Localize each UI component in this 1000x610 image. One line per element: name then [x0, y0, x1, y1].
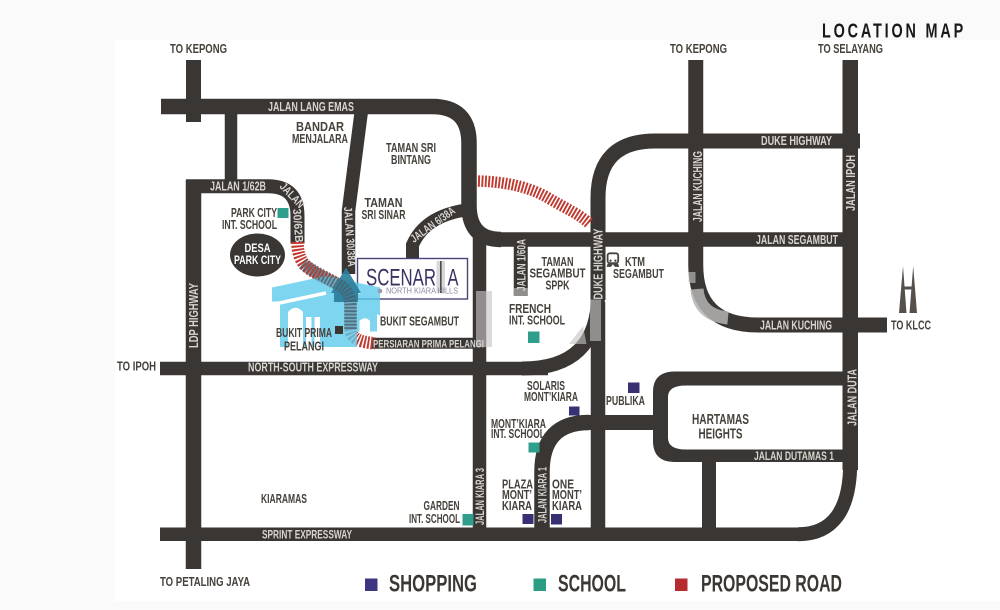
svg-text:JALAN KIARA 1: JALAN KIARA 1 [538, 467, 550, 523]
svg-text:JALAN 1/62B: JALAN 1/62B [210, 180, 266, 194]
svg-text:JALAN IPOH: JALAN IPOH [844, 155, 858, 211]
svg-text:KIARA: KIARA [502, 498, 532, 513]
svg-text:JALAN KUCHING: JALAN KUCHING [691, 151, 705, 222]
svg-text:KIARAMAS: KIARAMAS [261, 491, 307, 506]
svg-text:PARK CITY: PARK CITY [234, 255, 281, 267]
svg-text:JALAN KUCHING: JALAN KUCHING [760, 319, 832, 333]
svg-text:KIARA: KIARA [552, 498, 582, 513]
svg-text:LDP HIGHWAY: LDP HIGHWAY [187, 283, 201, 348]
svg-text:PUBLIKA: PUBLIKA [606, 393, 645, 408]
svg-text:NORTH-SOUTH EXPRESSWAY: NORTH-SOUTH EXPRESSWAY [248, 361, 378, 375]
svg-text:JALAN LANG EMAS: JALAN LANG EMAS [268, 100, 354, 114]
svg-text:DESA: DESA [245, 243, 271, 255]
svg-text:TO SELAYANG: TO SELAYANG [818, 41, 883, 56]
svg-text:TO PETALING JAYA: TO PETALING JAYA [160, 574, 250, 589]
svg-text:SEGAMBUT: SEGAMBUT [613, 266, 664, 281]
svg-text:TO KEPONG: TO KEPONG [670, 41, 727, 56]
svg-text:TO IPOH: TO IPOH [117, 359, 156, 374]
svg-text:NORTH KIARA HILLS: NORTH KIARA HILLS [386, 287, 458, 296]
svg-text:SRI SINAR: SRI SINAR [362, 207, 406, 222]
svg-text:SHOPPING: SHOPPING [389, 571, 477, 598]
svg-text:SCHOOL: SCHOOL [558, 571, 626, 598]
svg-text:30/62B: 30/62B [290, 208, 304, 243]
svg-text:PELANGI: PELANGI [284, 339, 324, 354]
svg-text:JALAN KIARA 3: JALAN KIARA 3 [475, 468, 487, 525]
svg-text:MENJALARA: MENJALARA [292, 131, 348, 146]
svg-text:JALAN DUTAMAS 1: JALAN DUTAMAS 1 [754, 451, 834, 463]
svg-text:BUKIT SEGAMBUT: BUKIT SEGAMBUT [380, 314, 459, 329]
svg-text:INT. SCHOOL: INT. SCHOOL [509, 313, 565, 328]
svg-text:SPPK: SPPK [546, 278, 570, 293]
svg-text:DUKE HIGHWAY: DUKE HIGHWAY [592, 228, 606, 299]
svg-text:LOCATION MAP: LOCATION MAP [822, 20, 966, 43]
svg-text:BINTANG: BINTANG [391, 152, 431, 167]
svg-text:PERSIARAN PRIMA PELANGI: PERSIARAN PRIMA PELANGI [373, 339, 484, 351]
svg-text:HEIGHTS: HEIGHTS [699, 426, 743, 443]
svg-text:JALAN 1/60A: JALAN 1/60A [517, 239, 529, 291]
svg-text:INT. SCHOOL: INT. SCHOOL [222, 217, 277, 232]
svg-text:PROPOSED ROAD: PROPOSED ROAD [701, 571, 842, 598]
svg-text:MONT’KIARA: MONT’KIARA [524, 389, 578, 404]
svg-text:JALAN SEGAMBUT: JALAN SEGAMBUT [756, 233, 838, 247]
svg-text:DUKE HIGHWAY: DUKE HIGHWAY [761, 134, 832, 148]
svg-text:INT. SCHOOL: INT. SCHOOL [409, 511, 460, 526]
svg-text:TO KEPONG: TO KEPONG [170, 41, 227, 56]
svg-text:TO KLCC: TO KLCC [891, 318, 931, 333]
svg-text:SPRINT EXPRESSWAY: SPRINT EXPRESSWAY [262, 530, 352, 542]
svg-text:JALAN DUTA: JALAN DUTA [846, 369, 860, 426]
svg-text:INT. SCHOOL: INT. SCHOOL [491, 426, 545, 441]
